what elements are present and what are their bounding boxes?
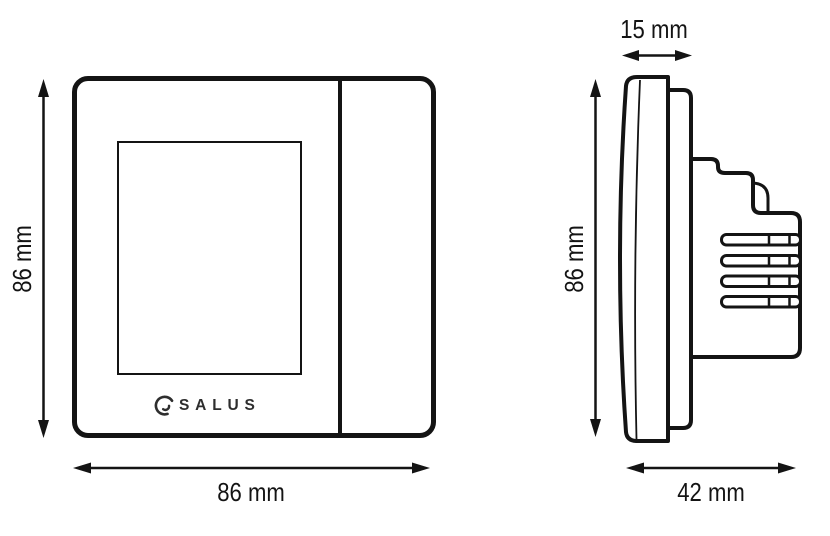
front-width-arrow bbox=[73, 463, 430, 474]
side-height-arrow bbox=[590, 79, 601, 437]
front-height-arrow bbox=[38, 79, 49, 438]
dimension-diagram: SALUS bbox=[0, 0, 830, 536]
side-front-depth-arrow bbox=[622, 50, 692, 61]
side-total-depth-label: 42 mm bbox=[660, 479, 762, 505]
dimension-arrows bbox=[0, 0, 830, 536]
side-height-label: 86 mm bbox=[561, 225, 587, 293]
side-total-depth-arrow bbox=[626, 463, 796, 474]
front-width-label: 86 mm bbox=[200, 479, 302, 505]
front-height-label: 86 mm bbox=[9, 225, 35, 293]
side-front-depth-label: 15 mm bbox=[603, 16, 705, 42]
